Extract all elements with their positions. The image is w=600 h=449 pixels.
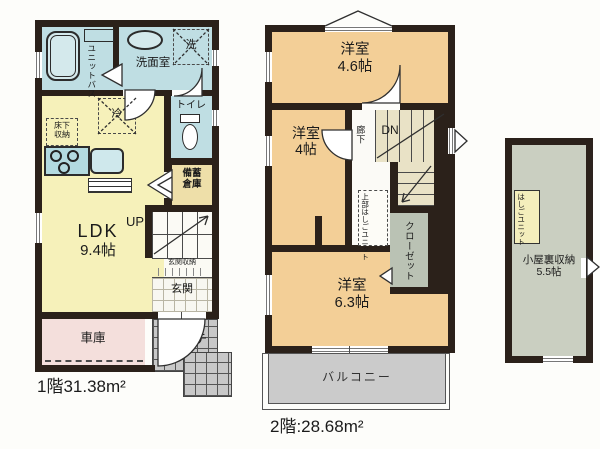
label-attic-storage: 小屋裏収納 5.5帖: [512, 254, 586, 278]
wall-segment: [586, 138, 593, 363]
label-attic-ladder: はしごユニット: [516, 193, 525, 241]
label-attic-storage-l2: 5.5帖: [512, 266, 586, 278]
attic-door-gap: [581, 258, 586, 278]
wall-segment: [505, 138, 512, 363]
label-attic-ladder-l1: はしご: [517, 193, 526, 216]
room-attic-storage: [512, 145, 586, 356]
floor-plan-image: ユニットバス 洗面室 洗 トイレ 冷 床下 収納 LDK 9.4帖 UP 備蓄 …: [0, 0, 600, 449]
attic-plan: はしごユニット 小屋裏収納 5.5帖: [0, 0, 600, 449]
wall-segment: [505, 138, 593, 145]
attic-bottom-opening: [543, 356, 573, 363]
label-attic-ladder-l2: ユニット: [517, 216, 526, 246]
label-attic-storage-l1: 小屋裏収納: [512, 254, 586, 266]
